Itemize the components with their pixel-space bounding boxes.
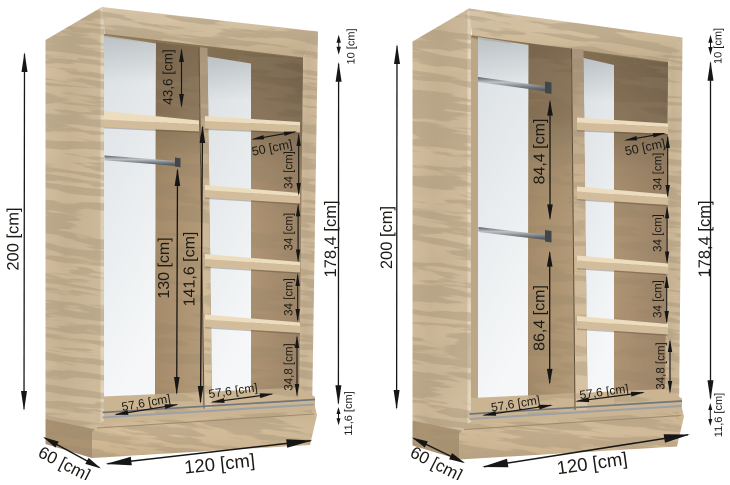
svg-text:200 [cm]: 200 [cm] <box>378 206 396 269</box>
svg-text:10 [cm]: 10 [cm] <box>712 28 724 64</box>
svg-text:34 [cm]: 34 [cm] <box>284 213 296 251</box>
svg-text:178,4 [cm]: 178,4 [cm] <box>696 200 714 277</box>
svg-text:141,6 [cm]: 141,6 [cm] <box>182 232 199 307</box>
svg-text:11,6 [cm]: 11,6 [cm] <box>713 393 725 437</box>
svg-text:34,8 [cm]: 34,8 [cm] <box>656 342 668 389</box>
svg-text:34 [cm]: 34 [cm] <box>653 153 665 191</box>
svg-text:34 [cm]: 34 [cm] <box>284 278 296 316</box>
svg-text:34 [cm]: 34 [cm] <box>653 214 665 252</box>
svg-text:84,4 [cm]: 84,4 [cm] <box>532 119 549 185</box>
svg-text:34,8 [cm]: 34,8 [cm] <box>284 343 296 390</box>
svg-text:34 [cm]: 34 [cm] <box>284 151 296 189</box>
svg-text:86,4 [cm]: 86,4 [cm] <box>532 285 549 351</box>
svg-text:34 [cm]: 34 [cm] <box>653 280 665 318</box>
svg-text:200 [cm]: 200 [cm] <box>4 207 22 270</box>
svg-text:130 [cm]: 130 [cm] <box>156 237 173 298</box>
svg-text:178,4 [cm]: 178,4 [cm] <box>322 200 340 277</box>
svg-text:43,6 [cm]: 43,6 [cm] <box>161 49 176 105</box>
svg-text:11,6 [cm]: 11,6 [cm] <box>343 391 355 435</box>
svg-text:10 [cm]: 10 [cm] <box>345 28 357 64</box>
